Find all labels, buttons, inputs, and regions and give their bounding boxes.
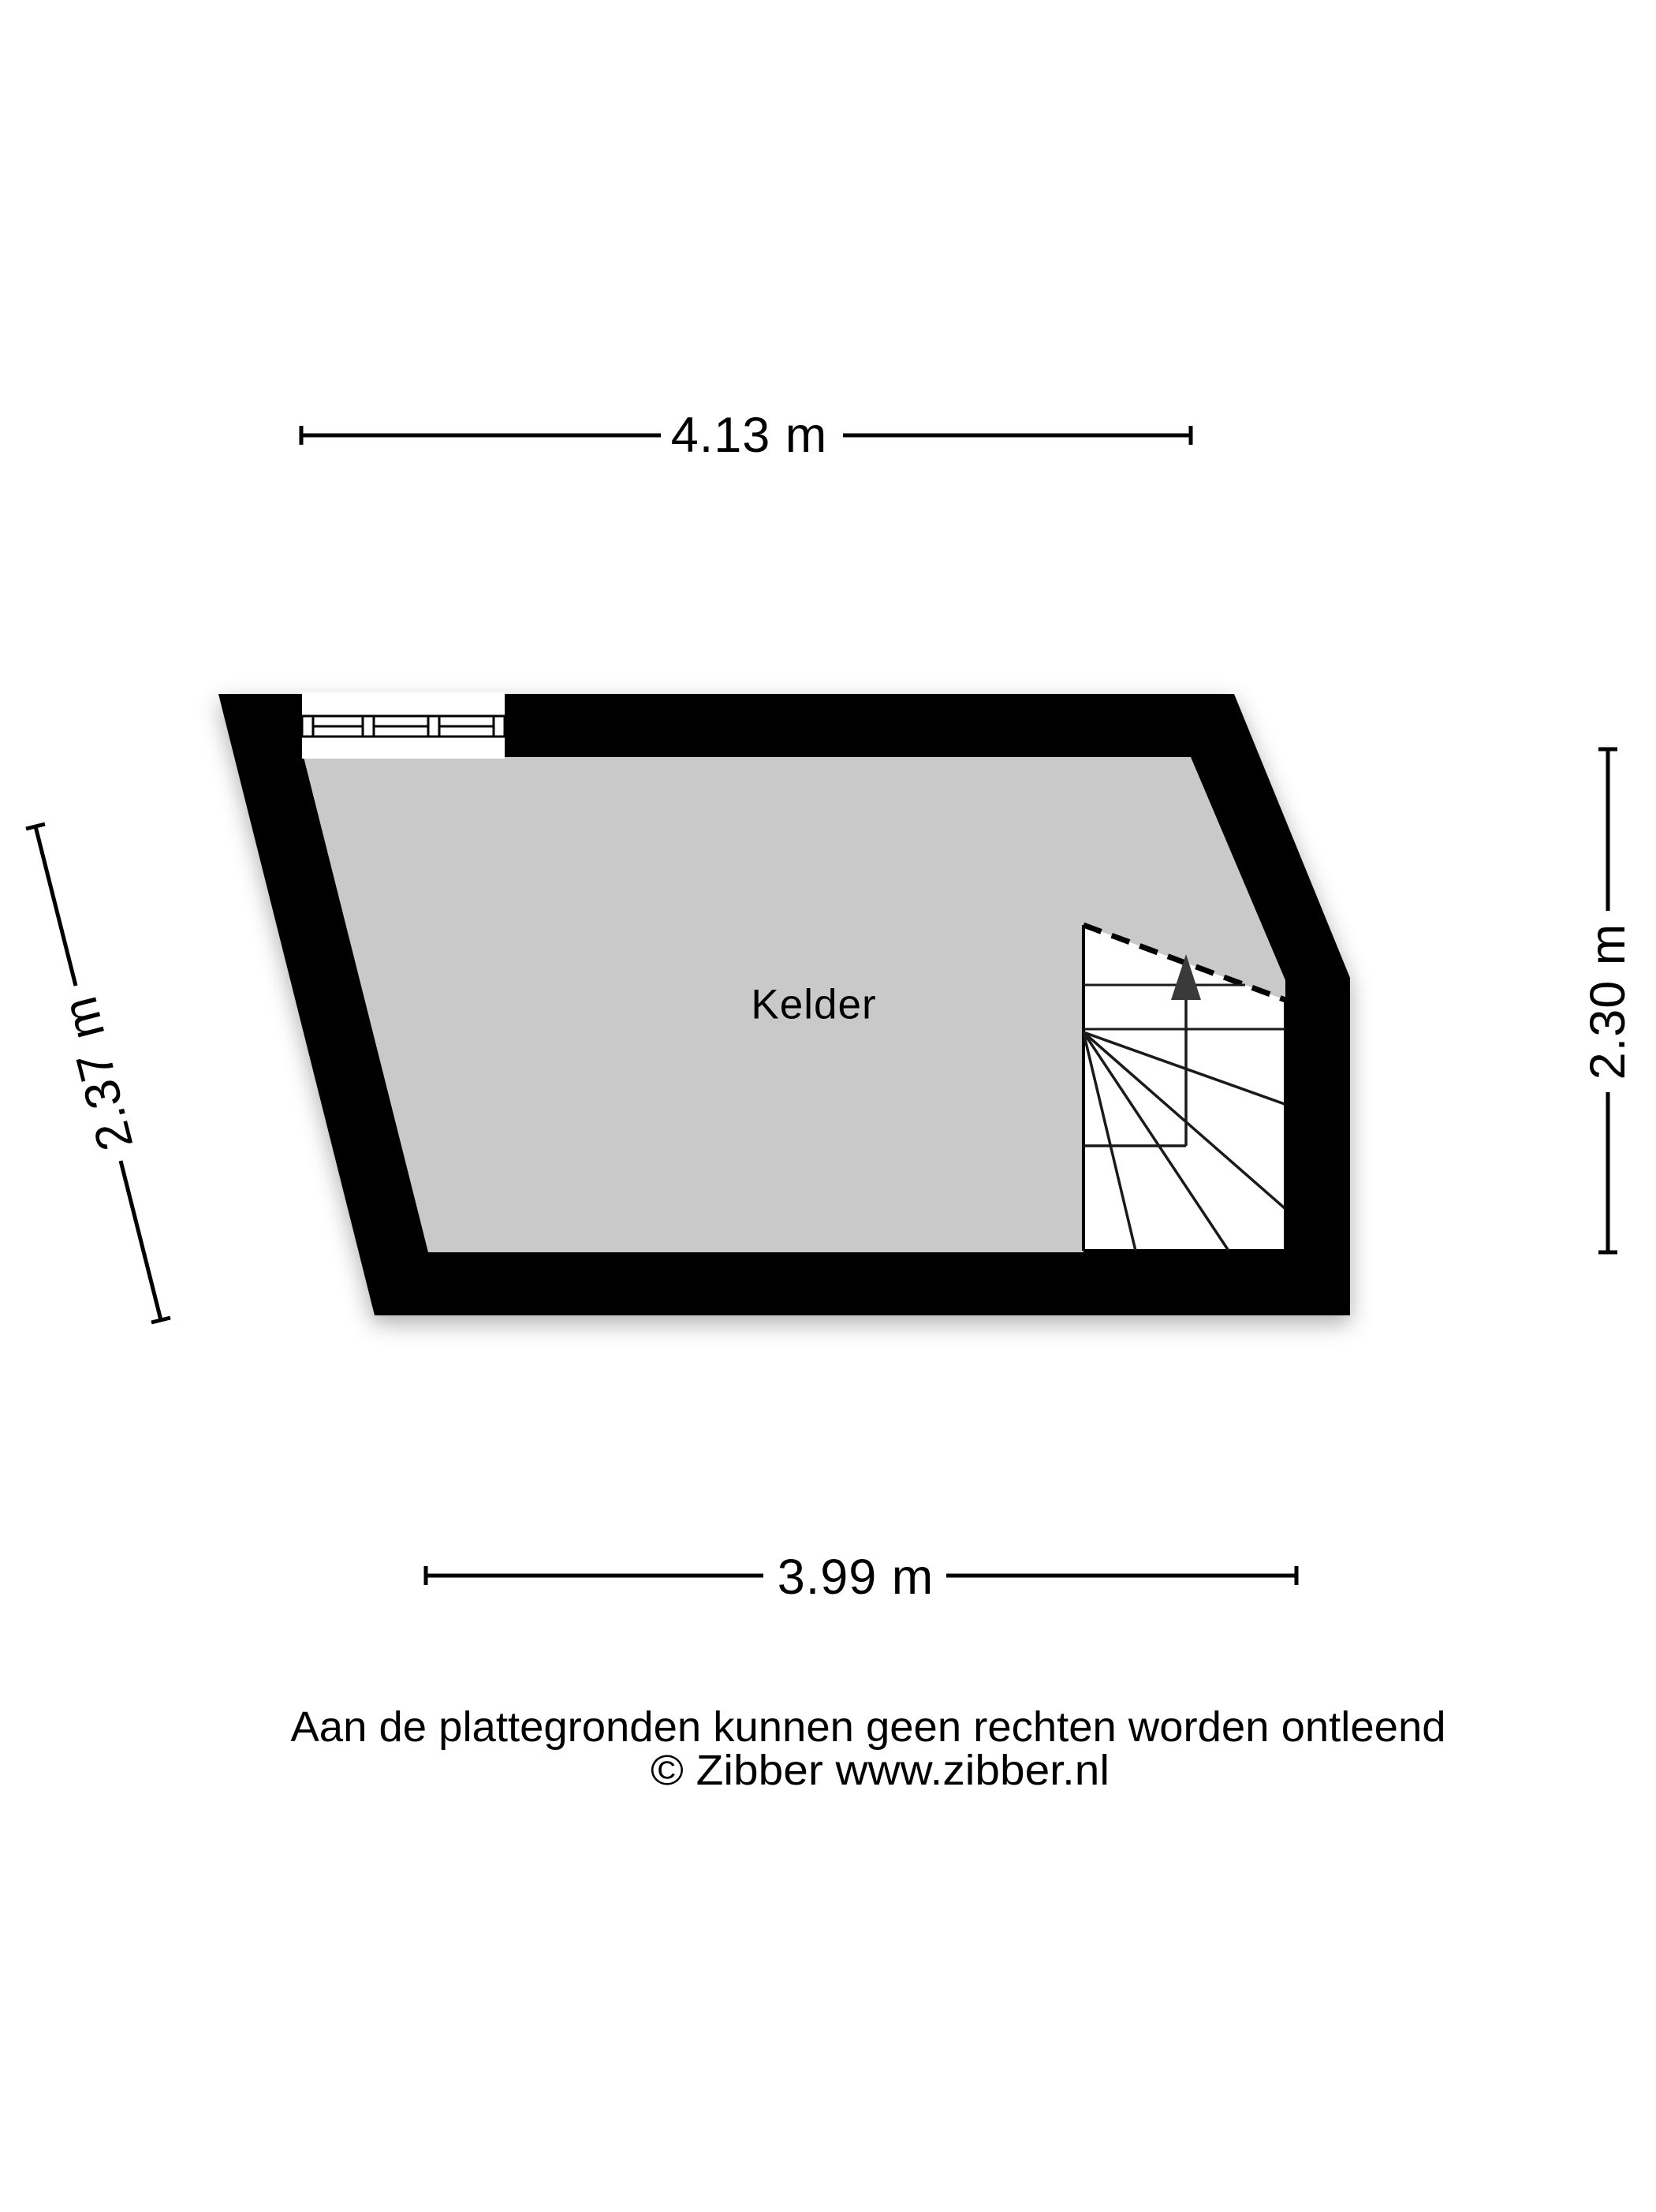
dimension-bottom-label: 3.99 m: [778, 1550, 934, 1605]
window-post: [494, 716, 505, 737]
dimension-top-label: 4.13 m: [671, 408, 828, 463]
copyright-text: © Zibber www.zibber.nl: [651, 1747, 1110, 1794]
room-name-label: Kelder: [751, 982, 876, 1028]
building: Kelder: [218, 692, 1350, 1315]
window-post: [428, 716, 439, 737]
window-post: [363, 716, 374, 737]
window: [302, 692, 505, 759]
window-post: [302, 716, 313, 737]
floorplan-canvas: Kelder 4.13 m 2.37 m 2.30 m 3.99 m Aan d…: [0, 0, 1656, 2208]
dimension-right-label: 2.30 m: [1580, 923, 1635, 1080]
disclaimer-text: Aan de plattegronden kunnen geen rechten…: [291, 1703, 1446, 1751]
